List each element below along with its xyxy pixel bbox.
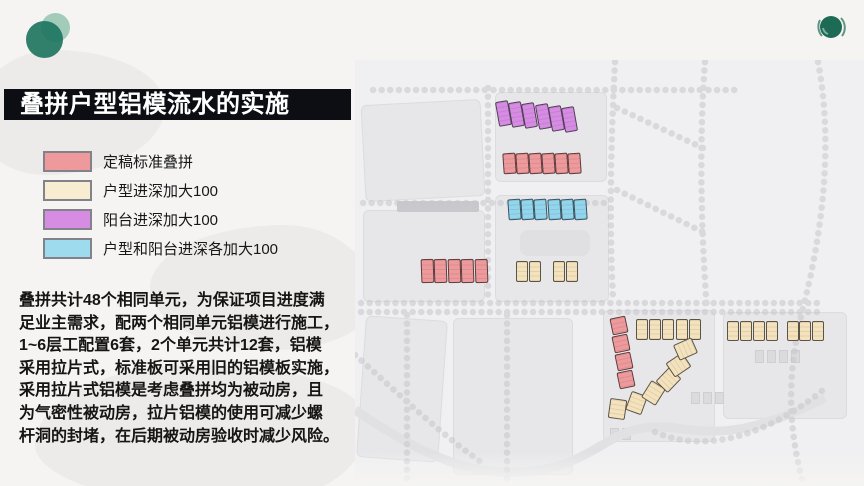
map-building-block <box>662 319 674 340</box>
map-building-block <box>421 259 434 283</box>
map-building-block <box>541 153 555 175</box>
map-building-block <box>573 199 587 221</box>
map-building-block <box>528 153 542 175</box>
map-building-block <box>434 259 447 283</box>
legend-row: 定稿标准叠拼 <box>43 149 278 173</box>
legend-label: 户型和阳台进深各加大100 <box>103 238 278 259</box>
map-building-block <box>611 334 630 354</box>
map-building-block <box>649 319 661 340</box>
map-building-block <box>448 259 461 283</box>
legend-label: 定稿标准叠拼 <box>103 151 193 172</box>
map-building-block <box>560 199 574 221</box>
map-building-block <box>515 153 529 175</box>
map-building-block <box>799 321 811 341</box>
map-building-block <box>553 261 565 282</box>
map-building-block <box>502 153 516 175</box>
legend-color-chip <box>43 180 92 201</box>
legend-color-chip <box>43 238 92 259</box>
map-building-block <box>507 199 521 221</box>
legend-label: 阳台进深加大100 <box>103 209 218 230</box>
logo-circles-icon <box>26 13 74 61</box>
legend-row: 户型进深加大100 <box>43 178 278 202</box>
logo-ring-icon <box>814 10 848 44</box>
map-building-block <box>676 319 688 340</box>
map-building-block <box>616 370 635 390</box>
legend: 定稿标准叠拼 户型进深加大100 阳台进深加大100 户型和阳台进深各加大100 <box>43 149 278 265</box>
map-building-block <box>547 199 561 221</box>
map-building-block <box>636 319 648 340</box>
map-building-block <box>766 321 778 341</box>
map-building-block <box>727 321 739 341</box>
map-building-block <box>740 321 752 341</box>
body-paragraph: 叠拼共计48个相同单元，为保证项目进度满 足业主需求，配两个相同单元铝模进行施工… <box>19 290 357 448</box>
map-building-block <box>461 259 474 283</box>
map-building-block <box>567 153 581 175</box>
legend-color-chip <box>43 209 92 230</box>
map-building-block <box>614 352 633 372</box>
map-building-block <box>753 321 765 341</box>
map-building-block <box>608 398 628 420</box>
map-building-block <box>609 316 628 336</box>
map-building-block <box>787 321 799 341</box>
legend-color-chip <box>43 151 92 172</box>
map-building-block <box>516 261 528 282</box>
map-building-block <box>533 199 547 221</box>
map-building-block <box>520 199 534 221</box>
map-building-block <box>529 261 541 282</box>
map-building-block <box>566 261 578 282</box>
map-building-block <box>554 153 568 175</box>
slide: 叠拼户型铝模流水的实施 定稿标准叠拼 户型进深加大100 阳台进深加大100 户… <box>0 0 864 486</box>
circle-icon <box>26 21 63 58</box>
map-building-block <box>812 321 824 341</box>
legend-label: 户型进深加大100 <box>103 180 218 201</box>
legend-row: 阳台进深加大100 <box>43 207 278 231</box>
map-building-block <box>475 259 488 283</box>
page-title: 叠拼户型铝模流水的实施 <box>4 89 351 120</box>
legend-row: 户型和阳台进深各加大100 <box>43 236 278 260</box>
